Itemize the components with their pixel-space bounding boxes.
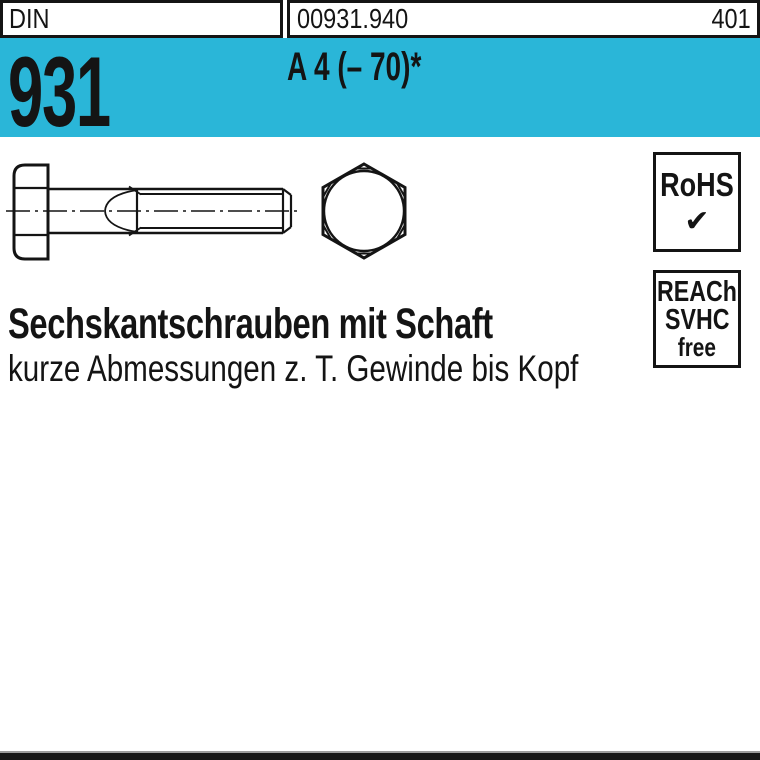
product-subtitle: kurze Abmessungen z. T. Gewinde bis Kopf [8, 349, 578, 390]
check-icon: ✔ [684, 207, 709, 237]
catalog-page: DIN 00931.940 401 931 A 4 (– 70)* [0, 0, 760, 760]
article-number: 00931.940 [297, 5, 408, 33]
rohs-badge: RoHS ✔ [653, 152, 741, 252]
page-number: 401 [712, 5, 751, 33]
din-label: DIN [9, 5, 50, 33]
material-grade: A 4 (– 70)* [287, 47, 421, 87]
product-title: Sechskantschrauben mit Schaft [8, 301, 493, 348]
reach-badge: REACh SVHC free [653, 270, 741, 368]
standard-number: 931 [8, 42, 110, 141]
din-cell: DIN [0, 0, 283, 38]
bolt-technical-drawing [0, 150, 760, 310]
reach-badge-line: REACh [657, 278, 737, 306]
reach-badge-line: free [678, 335, 716, 360]
reach-badge-line: SVHC [665, 306, 729, 334]
bolt-side-view-drawing [6, 165, 302, 259]
header-right-cell: 00931.940 401 [287, 0, 760, 38]
header-bar: DIN 00931.940 401 [0, 0, 760, 38]
bottom-rule [0, 751, 760, 760]
rohs-label: RoHS [660, 168, 734, 201]
bolt-head-view-drawing [323, 164, 405, 258]
blue-banner: 931 A 4 (– 70)* [0, 38, 760, 137]
